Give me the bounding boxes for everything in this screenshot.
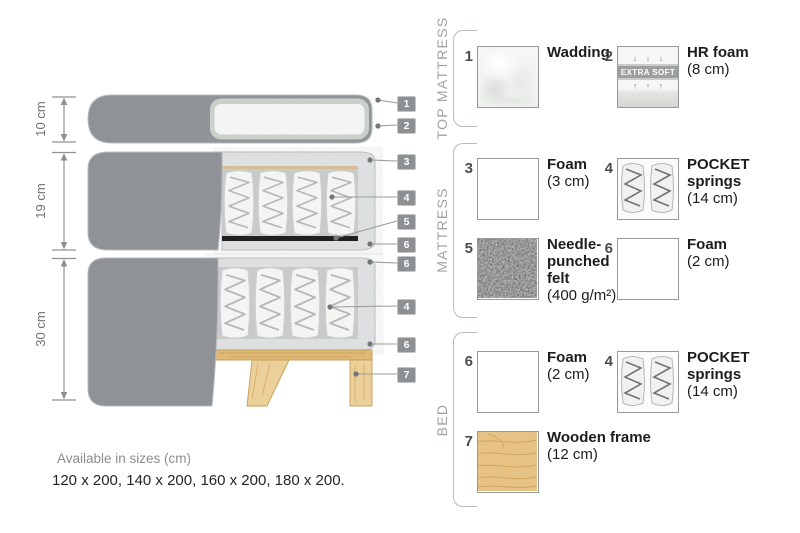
dimension-line-10cm xyxy=(52,97,76,142)
section-title-mattress: MATTRESS xyxy=(434,150,452,310)
arrows-up: ↑ ↑ ↑ xyxy=(630,81,667,91)
hr-foam-swatch: ↓ ↓ ↓ EXTRA SOFT ↑ ↑ ↑ xyxy=(617,46,679,108)
item-number: 6 xyxy=(455,353,477,370)
diagram-marker-tag: 5 xyxy=(397,214,416,230)
wadding-swatch xyxy=(477,46,539,108)
pocket-springs-swatch xyxy=(617,158,679,220)
tan-liner xyxy=(222,166,358,169)
legend-item-pocket-springs: 4 POCKET springs (14 cm) xyxy=(595,158,797,220)
spring-pocket xyxy=(220,268,250,338)
item-name: HR foam xyxy=(687,44,797,61)
spring-pocket xyxy=(258,171,288,235)
fabric-cover xyxy=(88,258,218,406)
extra-soft-badge: EXTRA SOFT xyxy=(617,64,679,80)
dimension-label-19cm: 19 cm xyxy=(33,166,51,236)
diagram-marker-tag: 6 xyxy=(397,337,416,353)
diagram-marker-tag: 1 xyxy=(397,96,416,112)
item-number: 1 xyxy=(455,48,477,65)
available-sizes-values: 120 x 200, 140 x 200, 160 x 200, 180 x 2… xyxy=(52,472,345,489)
item-size: (8 cm) xyxy=(687,61,797,78)
item-number: 4 xyxy=(595,353,617,370)
spring-pocket xyxy=(326,171,356,235)
diagram-marker-tag: 2 xyxy=(397,118,416,134)
spring-pocket xyxy=(255,268,285,338)
diagram-marker-tag: 6 xyxy=(397,237,416,253)
wooden-frame xyxy=(214,350,372,406)
pocket-springs-swatch xyxy=(617,351,679,413)
fabric-cover xyxy=(88,152,222,250)
item-number: 3 xyxy=(455,160,477,177)
legend-item-foam-2cm: 6 Foam (2 cm) xyxy=(595,238,797,300)
spring-pocket xyxy=(224,171,254,235)
legend-item-pocket-springs-bed: 4 POCKET springs (14 cm) xyxy=(595,351,797,413)
legend-item-wooden-frame: 7 Wooden frame (12 cm) xyxy=(455,431,657,493)
item-size: (14 cm) xyxy=(687,383,797,400)
mattress-section xyxy=(88,152,375,250)
item-name: POCKET springs xyxy=(687,156,797,190)
dimension-line-30cm xyxy=(52,259,76,401)
foam-swatch xyxy=(477,158,539,220)
foam-swatch xyxy=(477,351,539,413)
wood-swatch xyxy=(477,431,539,493)
diagram-marker-tag: 7 xyxy=(397,367,416,383)
item-number: 5 xyxy=(455,240,477,257)
diagram-marker-tag: 3 xyxy=(397,154,416,170)
dimension-label-10cm: 10 cm xyxy=(33,84,51,154)
item-size: (2 cm) xyxy=(687,253,797,270)
spring-pocket xyxy=(290,268,320,338)
available-sizes-title: Available in sizes (cm) xyxy=(57,451,191,466)
dimension-line-19cm xyxy=(52,153,76,251)
spring-pocket xyxy=(325,268,355,338)
item-size: (12 cm) xyxy=(547,446,657,463)
item-number: 4 xyxy=(595,160,617,177)
mattress-construction-infographic: 10 cm 19 cm 30 cm 1 2 3 4 5 6 6 4 6 7 TO… xyxy=(0,0,800,533)
top-mattress-section xyxy=(88,95,372,143)
felt-swatch xyxy=(477,238,539,300)
section-title-bed: BED xyxy=(434,340,452,500)
dimension-label-30cm: 30 cm xyxy=(33,294,51,364)
legend-item-hr-foam: 2 ↓ ↓ ↓ EXTRA SOFT ↑ ↑ ↑ HR foam (8 cm) xyxy=(595,46,797,108)
item-number: 2 xyxy=(595,48,617,65)
item-number: 6 xyxy=(595,240,617,257)
diagram-marker-tag: 4 xyxy=(397,299,416,315)
section-title-top-mattress: TOP MATTRESS xyxy=(434,0,452,158)
bed-base-section xyxy=(88,258,375,406)
spring-pocket xyxy=(292,171,322,235)
foam-swatch xyxy=(617,238,679,300)
item-number: 7 xyxy=(455,433,477,450)
item-name: Foam xyxy=(687,236,797,253)
diagram-marker-tag: 4 xyxy=(397,190,416,206)
diagram-marker-tag: 6 xyxy=(397,256,416,272)
item-name: POCKET springs xyxy=(687,349,797,383)
arrows-down: ↓ ↓ ↓ xyxy=(630,53,667,63)
item-size: (14 cm) xyxy=(687,190,797,207)
item-name: Wooden frame xyxy=(547,429,657,446)
